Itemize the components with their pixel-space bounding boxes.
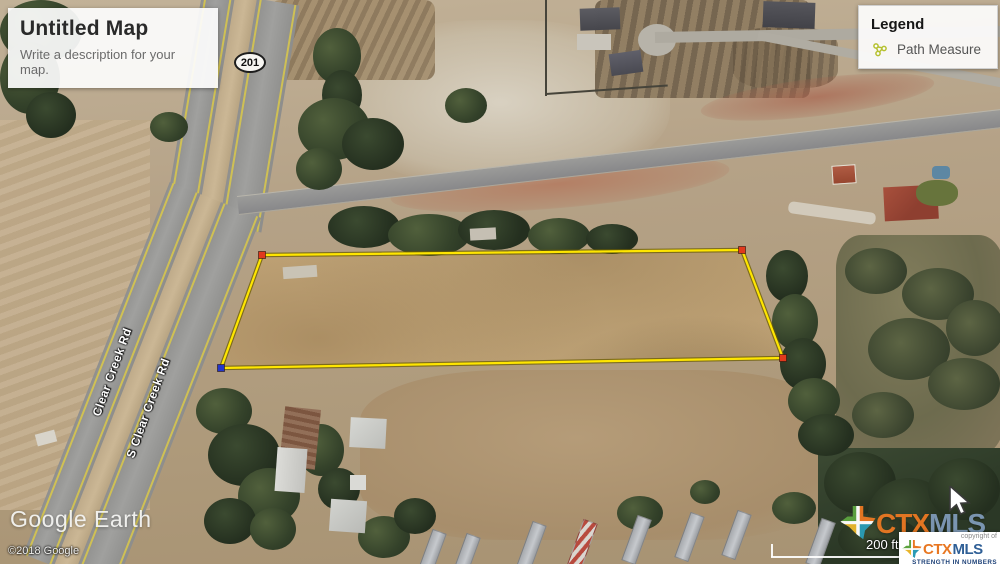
brand-box-ctx-text: CTX [923, 542, 952, 557]
map-title: Untitled Map [20, 17, 206, 41]
parcel-vertex-marker [259, 252, 266, 259]
satellite-map[interactable]: 201 Clear Creek Rd S Clear Creek Rd Unti… [0, 0, 1000, 564]
legend-item-path-measure[interactable]: Path Measure [871, 42, 985, 57]
path-measure-icon [871, 42, 888, 57]
texas-logo-icon [840, 506, 876, 541]
legend-item-label: Path Measure [897, 42, 981, 57]
copyright-text: ©2018 Google [8, 545, 79, 557]
ctxmls-brand-box: copyright of CTXMLS STRENGTH IN NUMBERS [899, 532, 1000, 564]
google-earth-logo: Google Earth [10, 506, 152, 533]
parcel-vertex-marker [739, 247, 746, 254]
legend-panel: Legend Path Measure [858, 5, 998, 69]
map-description-placeholder: Write a description for your map. [20, 47, 206, 77]
brand-box-mls-text: MLS [953, 542, 983, 557]
copyright-of-text: copyright of [902, 533, 997, 540]
texas-logo-icon-small [902, 540, 922, 559]
mouse-cursor-icon [948, 486, 974, 516]
brand-box-tagline: STRENGTH IN NUMBERS [902, 559, 997, 564]
legend-title: Legend [871, 16, 985, 33]
parcel-vertex-marker [218, 365, 225, 372]
map-title-panel: Untitled Map Write a description for you… [8, 8, 218, 88]
parcel-vertex-marker [780, 355, 787, 362]
route-201-shield: 201 [234, 52, 266, 73]
